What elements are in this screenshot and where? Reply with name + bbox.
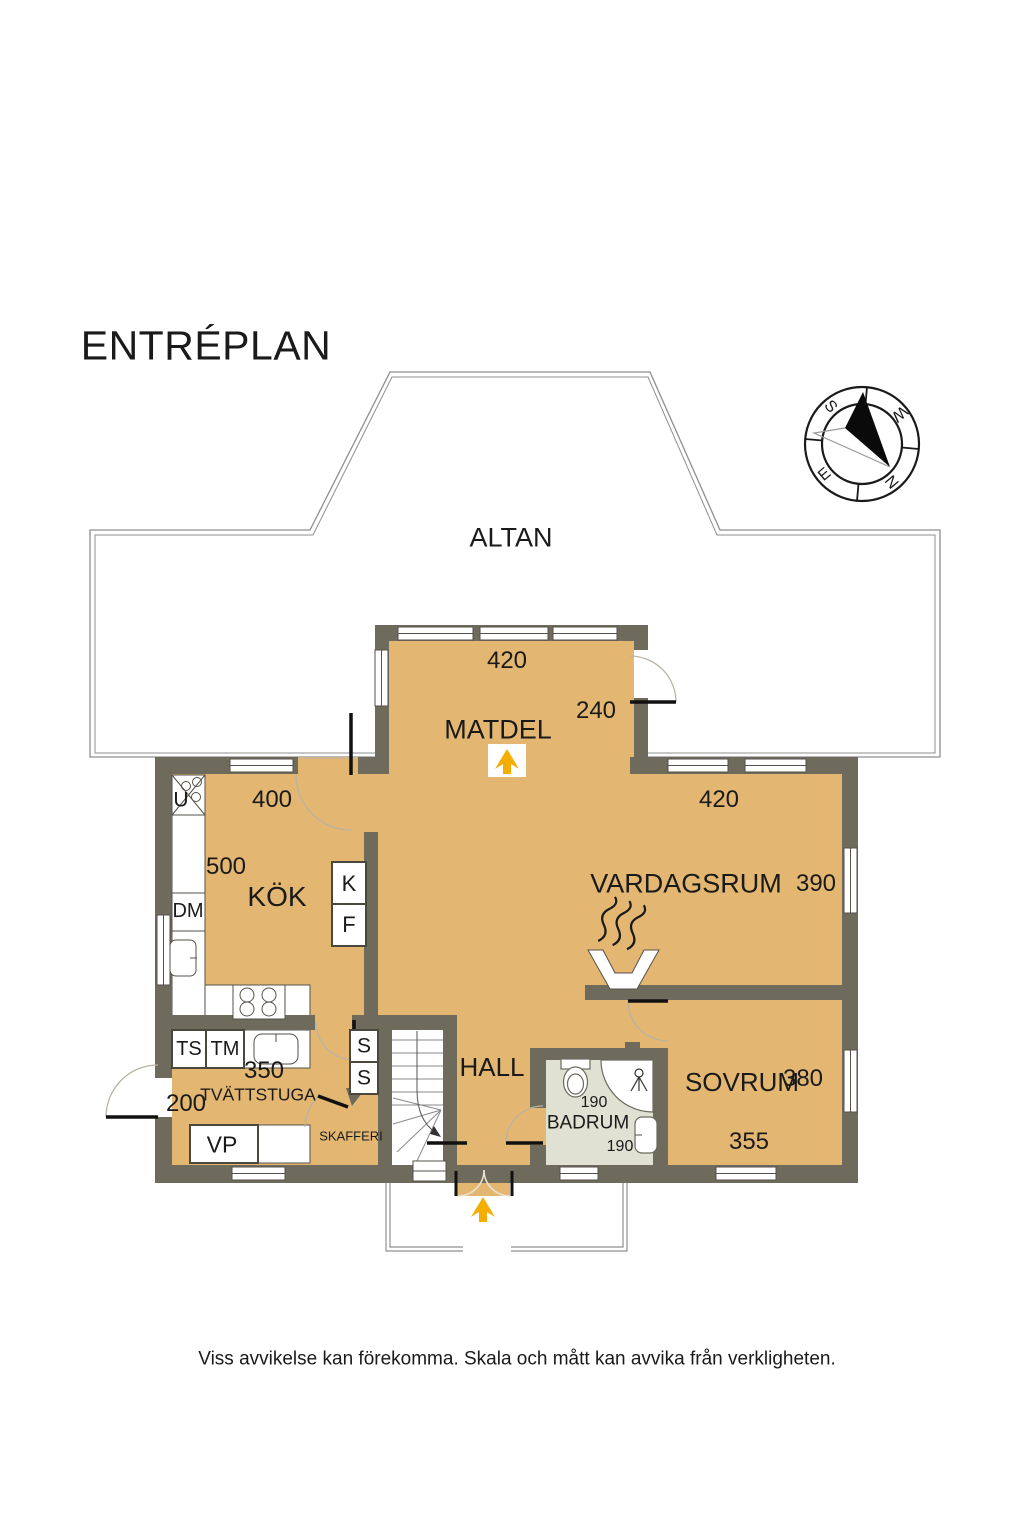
fixture-label-drying-cabinet: TS — [176, 1039, 202, 1059]
room-label-matdel: MATDEL — [444, 717, 552, 744]
entrance-arrow — [471, 1197, 495, 1222]
room-label-vardagsrum: VARDAGSRUM — [590, 871, 782, 898]
fixture-label-closet-2: S — [357, 1068, 371, 1089]
dim-matdel-width: 420 — [487, 649, 527, 673]
dim-sovrum-width: 355 — [729, 1130, 769, 1154]
stove — [233, 985, 285, 1019]
page-title: ENTRÉPLAN — [81, 326, 332, 367]
fixture-label-washing-machine: TM — [211, 1039, 240, 1059]
room-label-hall: HALL — [459, 1054, 524, 1080]
room-label-badrum: BADRUM — [547, 1114, 629, 1133]
exterior-side-door-arc — [106, 1065, 158, 1117]
dim-kok-depth: 500 — [206, 855, 246, 879]
room-label-skafferi: SKAFFERI — [319, 1130, 383, 1143]
fixture-label-heat-pump: VP — [207, 1134, 238, 1157]
room-label-sovrum: SOVRUM — [685, 1069, 799, 1095]
dim-matdel-opening: 240 — [576, 699, 616, 723]
fixture-label-oven: U — [173, 790, 188, 811]
dim-badrum-depth: 190 — [607, 1139, 634, 1155]
entrance-arrow-icon — [471, 1197, 495, 1222]
floorplan-drawing — [0, 0, 1024, 1536]
disclaimer-text: Viss avvikelse kan förekomma. Skala och … — [198, 1350, 836, 1369]
room-label-kok: KÖK — [247, 883, 306, 911]
dim-vardagsrum-width: 420 — [699, 788, 739, 812]
dim-tvattstuga-width: 350 — [244, 1059, 284, 1083]
fixture-label-dishwasher: DM — [172, 901, 203, 921]
floorplan-page: ENTRÉPLAN ALTAN MATDEL KÖK VARDAGSRUM HA… — [0, 0, 1024, 1536]
fixture-label-closet-1: S — [357, 1036, 371, 1057]
dim-tvattstuga-depth: 200 — [166, 1092, 206, 1116]
fixture-label-fridge: K — [342, 873, 357, 895]
room-label-altan: ALTAN — [469, 525, 552, 552]
matdel-exit-arrow — [488, 744, 526, 777]
room-label-tvattstuga: TVÄTTSTUGA — [200, 1086, 316, 1104]
fixture-label-freezer: F — [342, 914, 355, 936]
dim-kok-width: 400 — [252, 788, 292, 812]
dim-badrum-width: 190 — [581, 1095, 608, 1111]
dim-sovrum-depth: 380 — [783, 1067, 823, 1091]
dim-vardagsrum-depth: 390 — [796, 872, 836, 896]
